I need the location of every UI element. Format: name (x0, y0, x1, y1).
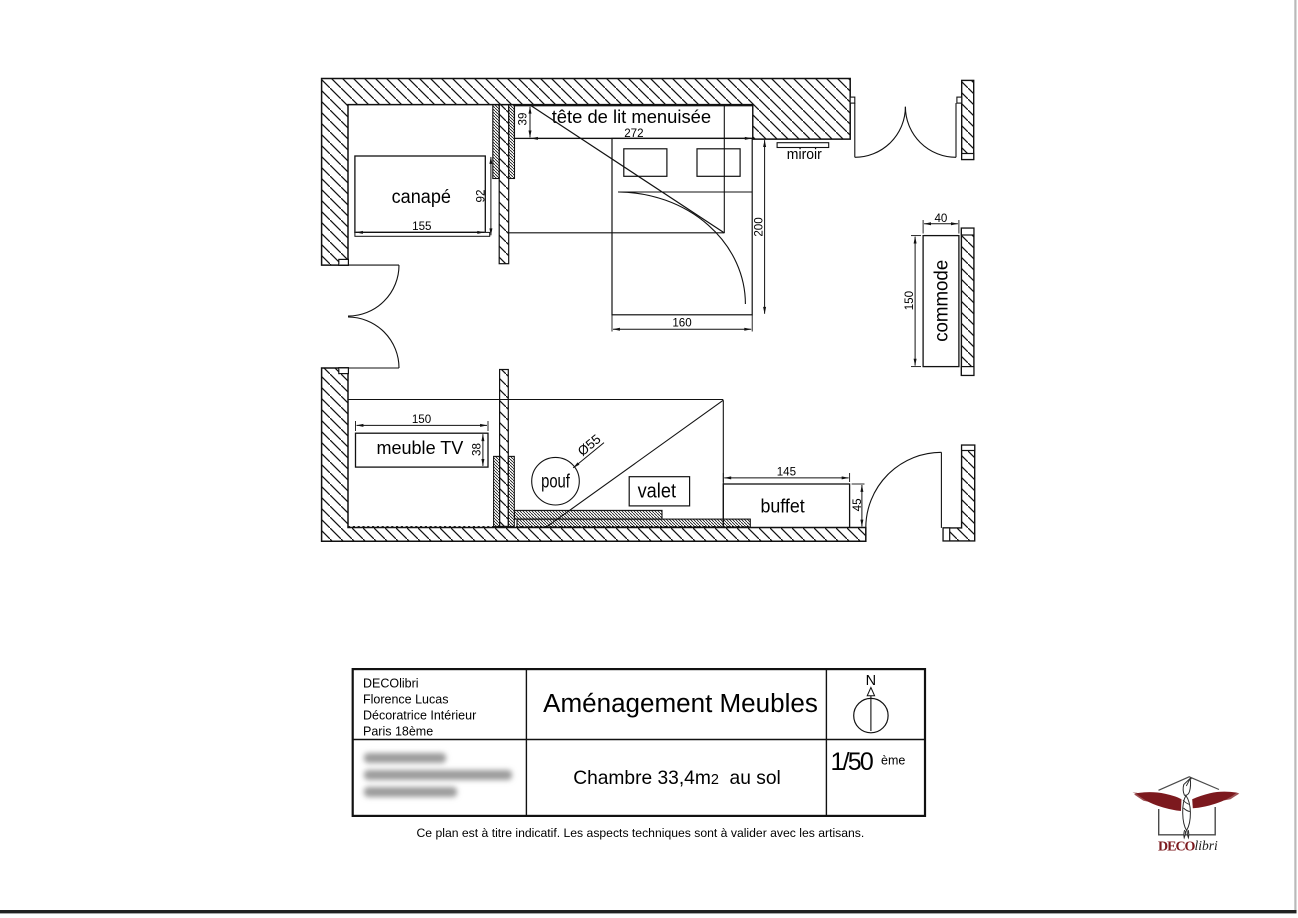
svg-text:Ø55: Ø55 (575, 431, 604, 458)
svg-text:Chambre 33,4m2 au sol: Chambre 33,4m2 au sol (573, 768, 781, 789)
svg-text:150: 150 (903, 291, 916, 310)
svg-text:miroir: miroir (787, 147, 822, 163)
svg-text:commode: commode (932, 260, 953, 342)
svg-text:meuble TV: meuble TV (376, 437, 463, 458)
svg-text:155: 155 (412, 220, 431, 233)
svg-text:39: 39 (516, 113, 529, 126)
svg-text:tête de lit menuisée: tête de lit menuisée (552, 106, 711, 127)
svg-text:1/50: 1/50 (831, 748, 873, 776)
svg-text:38: 38 (470, 443, 483, 456)
svg-text:Florence Lucas: Florence Lucas (363, 693, 448, 707)
svg-text:150: 150 (412, 413, 431, 426)
svg-text:40: 40 (934, 212, 947, 225)
svg-text:Aménagement Meubles: Aménagement Meubles (543, 688, 818, 718)
svg-text:pouf: pouf (541, 471, 570, 493)
svg-text:buffet: buffet (760, 497, 805, 518)
svg-text:160: 160 (672, 317, 691, 330)
svg-text:ème: ème (881, 754, 905, 768)
svg-text:145: 145 (777, 465, 796, 478)
svg-text:Décoratrice Intérieur: Décoratrice Intérieur (363, 709, 476, 723)
svg-text:valet: valet (638, 481, 677, 503)
svg-text:200: 200 (752, 217, 765, 236)
svg-text:Ce plan est à titre indicatif.: Ce plan est à titre indicatif. Les aspec… (417, 826, 865, 840)
svg-text:45: 45 (851, 498, 864, 511)
svg-text:libri: libri (1195, 838, 1219, 853)
svg-text:Paris 18ème: Paris 18ème (363, 725, 433, 739)
svg-text:canapé: canapé (392, 187, 451, 208)
svg-text:92: 92 (474, 190, 487, 203)
svg-text:DECOlibri: DECOlibri (363, 677, 419, 691)
svg-text:DECO: DECO (1158, 840, 1196, 855)
